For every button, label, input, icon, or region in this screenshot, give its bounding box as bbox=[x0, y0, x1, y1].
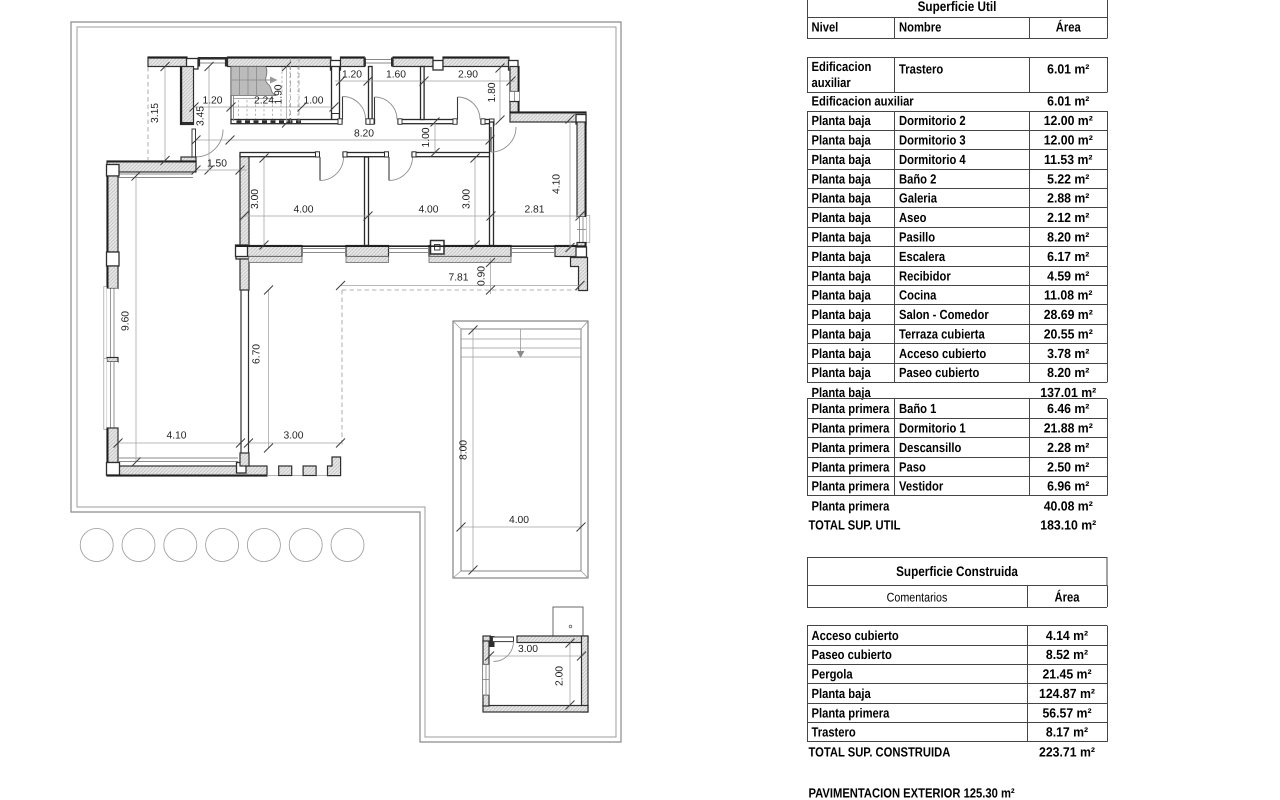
svg-text:8.20 m²: 8.20 m² bbox=[1047, 230, 1090, 245]
svg-text:0.90: 0.90 bbox=[477, 266, 488, 286]
svg-text:Planta primera: Planta primera bbox=[812, 401, 890, 416]
svg-text:Recibidor: Recibidor bbox=[899, 268, 951, 283]
svg-text:Planta baja: Planta baja bbox=[812, 191, 872, 206]
svg-text:1.90: 1.90 bbox=[274, 84, 285, 104]
svg-text:1.00: 1.00 bbox=[303, 96, 323, 107]
svg-text:2.24: 2.24 bbox=[254, 96, 274, 107]
svg-text:124.87 m²: 124.87 m² bbox=[1039, 686, 1095, 701]
svg-text:Acceso cubierto: Acceso cubierto bbox=[899, 346, 986, 361]
svg-text:Planta baja: Planta baja bbox=[812, 268, 872, 283]
svg-text:Dormitorio 2: Dormitorio 2 bbox=[899, 113, 966, 128]
svg-text:1.50: 1.50 bbox=[207, 159, 227, 170]
svg-text:Planta baja: Planta baja bbox=[812, 346, 872, 361]
svg-text:2.00: 2.00 bbox=[555, 666, 566, 686]
svg-text:3.78 m²: 3.78 m² bbox=[1047, 346, 1090, 361]
svg-text:21.88 m²: 21.88 m² bbox=[1044, 421, 1094, 436]
svg-text:Planta baja: Planta baja bbox=[812, 133, 872, 148]
svg-text:Planta primera: Planta primera bbox=[812, 499, 890, 514]
svg-text:Cocina: Cocina bbox=[899, 288, 937, 303]
svg-text:Edificacion: Edificacion bbox=[812, 59, 872, 74]
svg-text:Edificacion auxiliar: Edificacion auxiliar bbox=[812, 94, 914, 109]
svg-text:Nombre: Nombre bbox=[899, 20, 941, 35]
svg-text:56.57 m²: 56.57 m² bbox=[1042, 705, 1092, 720]
svg-text:2.12 m²: 2.12 m² bbox=[1047, 210, 1090, 225]
svg-text:Planta baja: Planta baja bbox=[812, 113, 872, 128]
svg-text:auxiliar: auxiliar bbox=[812, 75, 851, 90]
svg-text:7.81: 7.81 bbox=[448, 273, 468, 284]
svg-text:Paso: Paso bbox=[899, 459, 926, 474]
svg-text:TOTAL SUP. UTIL: TOTAL SUP. UTIL bbox=[809, 518, 901, 533]
svg-text:Baño 1: Baño 1 bbox=[899, 401, 936, 416]
svg-text:Acceso cubierto: Acceso cubierto bbox=[812, 628, 899, 643]
svg-text:3.15: 3.15 bbox=[150, 103, 161, 123]
svg-text:183.10 m²: 183.10 m² bbox=[1040, 518, 1096, 533]
svg-text:Comentarios: Comentarios bbox=[887, 591, 948, 605]
svg-text:Planta baja: Planta baja bbox=[812, 171, 872, 186]
svg-text:Paseo cubierto: Paseo cubierto bbox=[899, 365, 979, 380]
svg-text:Dormitorio 1: Dormitorio 1 bbox=[899, 421, 966, 436]
svg-text:11.08 m²: 11.08 m² bbox=[1044, 288, 1093, 303]
svg-text:Área: Área bbox=[1055, 590, 1080, 605]
svg-text:6.01 m²: 6.01 m² bbox=[1047, 62, 1090, 77]
svg-text:6.17 m²: 6.17 m² bbox=[1047, 249, 1090, 264]
svg-text:9.60: 9.60 bbox=[121, 311, 132, 331]
svg-text:1.20: 1.20 bbox=[342, 70, 362, 81]
svg-text:3.00: 3.00 bbox=[518, 644, 538, 655]
svg-text:4.59 m²: 4.59 m² bbox=[1047, 268, 1090, 283]
svg-text:8.20 m²: 8.20 m² bbox=[1047, 365, 1090, 380]
svg-text:2.88 m²: 2.88 m² bbox=[1047, 191, 1090, 206]
svg-text:3.45: 3.45 bbox=[196, 106, 207, 126]
svg-text:20.55 m²: 20.55 m² bbox=[1044, 326, 1094, 341]
svg-text:28.69 m²: 28.69 m² bbox=[1044, 307, 1094, 322]
svg-text:Galeria: Galeria bbox=[899, 191, 938, 206]
svg-text:Planta baja: Planta baja bbox=[812, 686, 872, 701]
svg-text:3.00: 3.00 bbox=[250, 189, 261, 209]
svg-text:Planta primera: Planta primera bbox=[812, 440, 890, 455]
svg-text:21.45 m²: 21.45 m² bbox=[1042, 667, 1092, 682]
svg-text:Dormitorio 4: Dormitorio 4 bbox=[899, 152, 966, 167]
svg-text:Trastero: Trastero bbox=[812, 725, 856, 740]
svg-text:Planta baja: Planta baja bbox=[812, 230, 872, 245]
svg-text:Planta baja: Planta baja bbox=[812, 210, 872, 225]
svg-text:Planta baja: Planta baja bbox=[812, 365, 872, 380]
svg-text:6.01 m²: 6.01 m² bbox=[1047, 94, 1090, 109]
svg-text:Planta primera: Planta primera bbox=[812, 705, 890, 720]
svg-text:Pasillo: Pasillo bbox=[899, 230, 935, 245]
svg-text:11.53 m²: 11.53 m² bbox=[1044, 152, 1093, 167]
svg-text:4.14 m²: 4.14 m² bbox=[1046, 628, 1089, 643]
svg-text:6.70: 6.70 bbox=[252, 344, 263, 364]
svg-text:3.00: 3.00 bbox=[462, 189, 473, 209]
svg-text:1.60: 1.60 bbox=[386, 70, 406, 81]
svg-text:Área: Área bbox=[1056, 20, 1081, 35]
svg-text:Planta baja: Planta baja bbox=[812, 288, 872, 303]
svg-text:4.00: 4.00 bbox=[509, 515, 529, 526]
svg-text:Nivel: Nivel bbox=[812, 20, 839, 35]
svg-text:Baño 2: Baño 2 bbox=[899, 171, 936, 186]
svg-text:Superficie Construida: Superficie Construida bbox=[896, 564, 1018, 579]
svg-text:Dormitorio 3: Dormitorio 3 bbox=[899, 133, 966, 148]
svg-text:Planta baja: Planta baja bbox=[812, 152, 872, 167]
svg-text:Paseo cubierto: Paseo cubierto bbox=[812, 647, 892, 662]
svg-text:223.71 m²: 223.71 m² bbox=[1039, 745, 1095, 760]
svg-text:3.00: 3.00 bbox=[283, 431, 303, 442]
svg-text:TOTAL SUP. CONSTRUIDA: TOTAL SUP. CONSTRUIDA bbox=[809, 745, 951, 760]
svg-text:4.10: 4.10 bbox=[166, 431, 186, 442]
svg-text:Planta primera: Planta primera bbox=[812, 459, 890, 474]
svg-text:12.00 m²: 12.00 m² bbox=[1044, 133, 1094, 148]
svg-text:4.00: 4.00 bbox=[418, 205, 438, 216]
svg-text:1.80: 1.80 bbox=[487, 82, 498, 102]
svg-text:Planta primera: Planta primera bbox=[812, 479, 890, 494]
svg-text:Planta primera: Planta primera bbox=[812, 421, 890, 436]
svg-text:2.90: 2.90 bbox=[458, 70, 478, 81]
svg-text:Planta baja: Planta baja bbox=[812, 385, 872, 400]
svg-text:6.96 m²: 6.96 m² bbox=[1047, 479, 1090, 494]
svg-text:8.00: 8.00 bbox=[459, 440, 470, 460]
svg-text:PAVIMENTACION EXTERIOR 125.30: PAVIMENTACION EXTERIOR 125.30 m² bbox=[809, 786, 1016, 800]
svg-text:Trastero: Trastero bbox=[899, 62, 943, 77]
svg-text:Salon - Comedor: Salon - Comedor bbox=[899, 307, 989, 322]
svg-text:137.01 m²: 137.01 m² bbox=[1040, 385, 1096, 400]
svg-text:5.22 m²: 5.22 m² bbox=[1047, 171, 1090, 186]
svg-text:2.28 m²: 2.28 m² bbox=[1047, 440, 1090, 455]
svg-text:1.00: 1.00 bbox=[421, 127, 432, 147]
svg-text:Escalera: Escalera bbox=[899, 249, 946, 264]
svg-text:Planta baja: Planta baja bbox=[812, 249, 872, 264]
svg-text:Aseo: Aseo bbox=[899, 210, 926, 225]
svg-text:Pergola: Pergola bbox=[812, 667, 854, 682]
svg-text:Superficie Util: Superficie Util bbox=[918, 0, 997, 14]
svg-text:Descansillo: Descansillo bbox=[899, 440, 961, 455]
svg-text:12.00 m²: 12.00 m² bbox=[1044, 113, 1094, 128]
svg-text:2.81: 2.81 bbox=[524, 205, 544, 216]
svg-text:Planta baja: Planta baja bbox=[812, 326, 872, 341]
svg-text:8.52 m²: 8.52 m² bbox=[1046, 647, 1089, 662]
svg-text:4.00: 4.00 bbox=[293, 205, 313, 216]
svg-text:4.10: 4.10 bbox=[552, 174, 563, 194]
svg-text:2.50 m²: 2.50 m² bbox=[1047, 459, 1090, 474]
svg-text:40.08 m²: 40.08 m² bbox=[1044, 499, 1094, 514]
svg-text:8.20: 8.20 bbox=[354, 129, 374, 140]
svg-text:Planta baja: Planta baja bbox=[812, 307, 872, 322]
svg-text:Vestidor: Vestidor bbox=[899, 479, 943, 494]
svg-text:6.46 m²: 6.46 m² bbox=[1047, 401, 1090, 416]
svg-text:Terraza cubierta: Terraza cubierta bbox=[899, 326, 985, 341]
svg-text:1.20: 1.20 bbox=[202, 96, 222, 107]
svg-text:8.17 m²: 8.17 m² bbox=[1046, 725, 1089, 740]
